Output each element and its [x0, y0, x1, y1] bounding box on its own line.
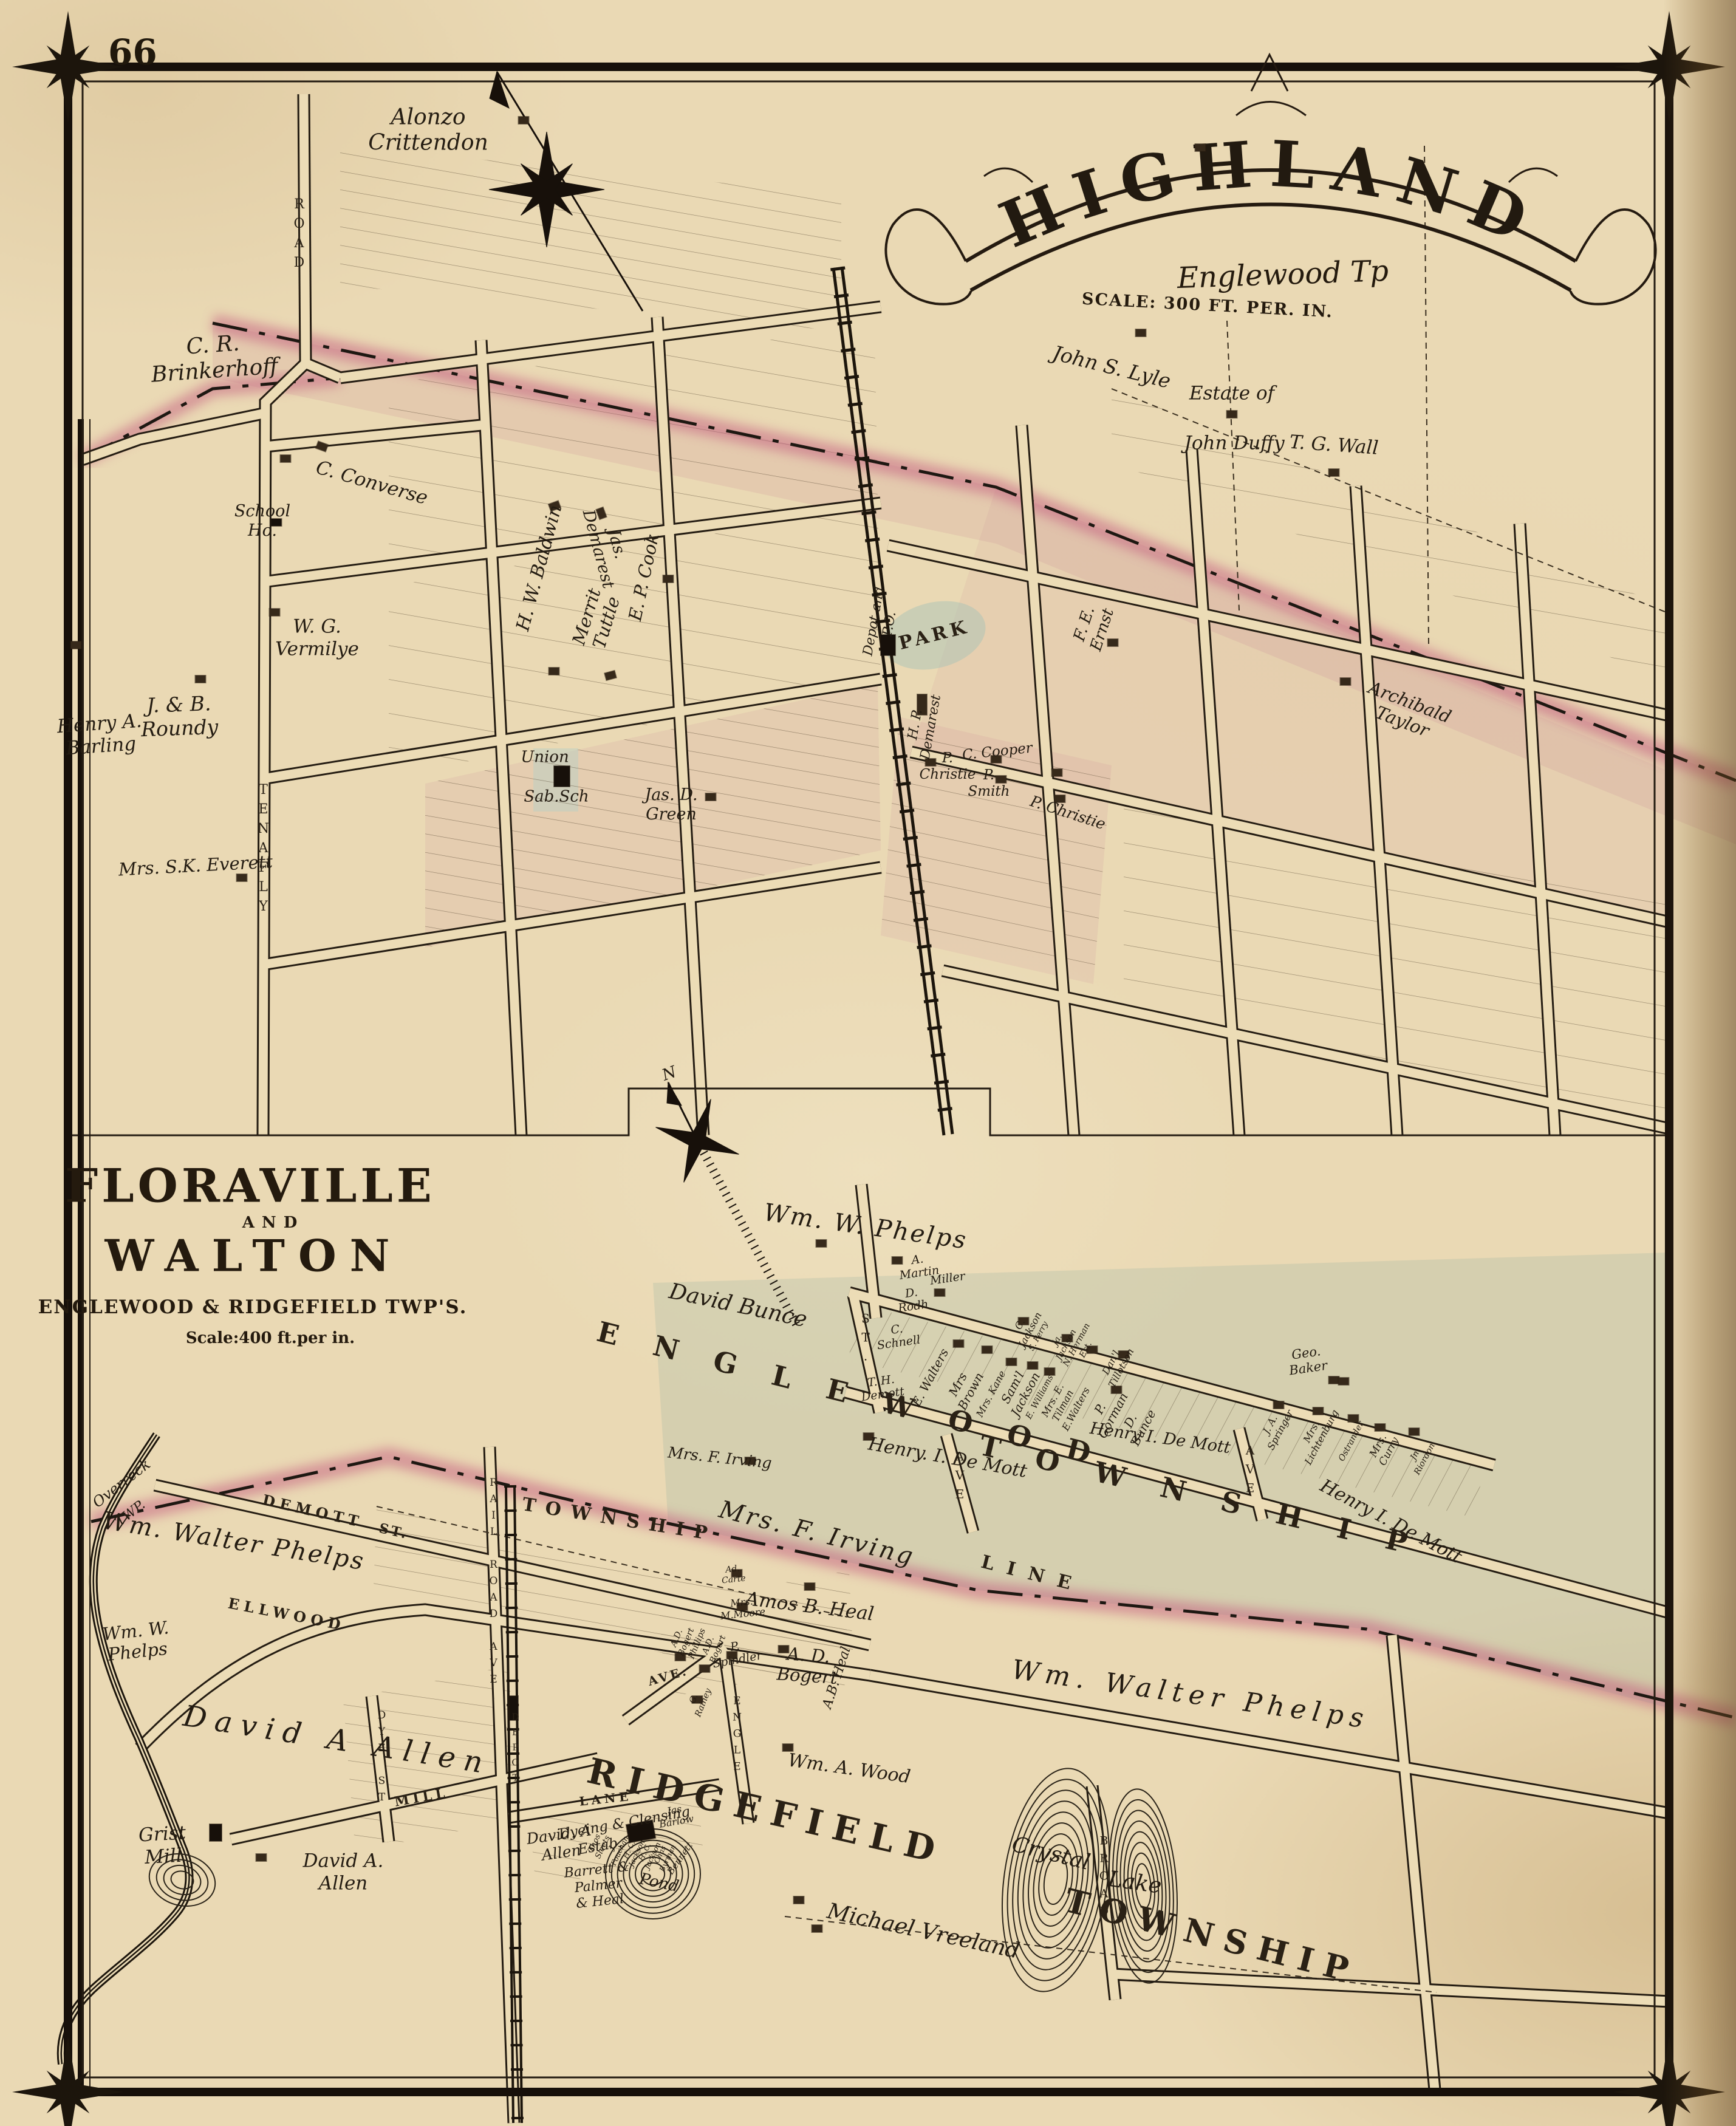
house-icon — [700, 1665, 710, 1672]
atlas-page: HIGHLAND 66 Englewood Tp SCALE: 300 FT. … — [0, 0, 1736, 2126]
house-icon — [982, 1346, 993, 1353]
owner-label: Grist Mill — [138, 1822, 188, 1868]
owner-label: TENAFLY — [256, 782, 270, 918]
owner-label: Barrett & Palmer & Heal — [563, 1859, 633, 1913]
owner-label: Union — [521, 748, 569, 767]
house-icon — [270, 609, 280, 616]
owner-label: AVE — [1244, 1443, 1256, 1500]
owner-label: Sab.Sch — [524, 788, 589, 807]
map2-scale: Scale:400 ft.per in. — [186, 1329, 355, 1347]
owner-label: D. Rodh — [895, 1284, 929, 1315]
owner-label: ENGLE — [732, 1695, 742, 1777]
owner-label: P. Smith — [968, 767, 1010, 800]
owner-label: John Duffy — [1184, 432, 1284, 455]
owner-label: Henry A. Barling — [56, 710, 145, 761]
house-icon — [210, 1824, 222, 1841]
house-icon — [1341, 678, 1351, 685]
house-icon — [706, 793, 716, 801]
house-icon — [663, 575, 674, 583]
house-icon — [812, 1925, 822, 1932]
owner-label: Alonzo Crittendon — [368, 105, 488, 157]
house-icon — [519, 117, 529, 124]
house-icon — [1108, 639, 1118, 646]
owner-label: AVE — [954, 1449, 966, 1506]
house-icon — [237, 874, 247, 881]
owner-label: Jas. D. Green — [644, 785, 697, 824]
house-icon — [1227, 411, 1237, 418]
house-icon — [554, 766, 570, 787]
house-icon — [196, 675, 206, 683]
house-icon — [935, 1289, 945, 1296]
house-icon — [256, 1854, 267, 1861]
house-icon — [816, 1240, 827, 1247]
owner-label: Wm. W. Phelps — [101, 1617, 172, 1666]
house-icon — [1409, 1428, 1420, 1435]
owner-label: C. R. Brinkerhoff — [149, 328, 279, 388]
owner-label: Mrs. M.Moore — [719, 1594, 766, 1622]
owner-label: RAIL ROAD AVE. — [488, 1477, 499, 1706]
map-engraving: HIGHLAND — [0, 0, 1736, 2126]
house-icon — [1052, 769, 1062, 776]
house-icon — [1329, 469, 1339, 476]
house-icon — [549, 668, 559, 675]
house-icon — [805, 1583, 815, 1590]
map2-title: FLORAVILLE — [65, 1159, 436, 1213]
owner-label: W. G. Vermilye — [275, 615, 359, 660]
house-icon — [1195, 144, 1206, 151]
house-icon — [794, 1896, 804, 1904]
page-gutter — [1663, 0, 1736, 2126]
page-number: 66 — [108, 32, 157, 73]
map2-and: AND — [242, 1214, 305, 1232]
house-icon — [281, 455, 291, 462]
owner-label: School Ho. — [234, 502, 290, 541]
house-icon — [1329, 1376, 1339, 1384]
map-divider — [68, 1089, 1669, 1135]
map2-title2: WALTON — [105, 1230, 403, 1282]
owner-label: Geo. Baker — [1286, 1343, 1328, 1378]
house-icon — [1028, 1362, 1038, 1369]
house-icon — [1136, 329, 1146, 337]
owner-label: David A. Allen — [303, 1850, 384, 1894]
map2-subtitle: ENGLEWOOD & RIDGEFIELD TWP'S. — [38, 1296, 468, 1318]
owner-label: ST. — [859, 1311, 872, 1368]
house-icon — [1339, 1378, 1349, 1385]
owner-label: J. & B. Roundy — [140, 692, 219, 742]
house-icon — [1006, 1358, 1017, 1365]
owner-label: Estate of — [1189, 383, 1274, 405]
house-icon — [71, 641, 81, 649]
owner-label: Ad. Carte — [720, 1564, 747, 1586]
house-icon — [954, 1340, 964, 1347]
owner-label: ROAD — [292, 197, 306, 275]
owner-label: DEPOT — [511, 1712, 520, 1788]
